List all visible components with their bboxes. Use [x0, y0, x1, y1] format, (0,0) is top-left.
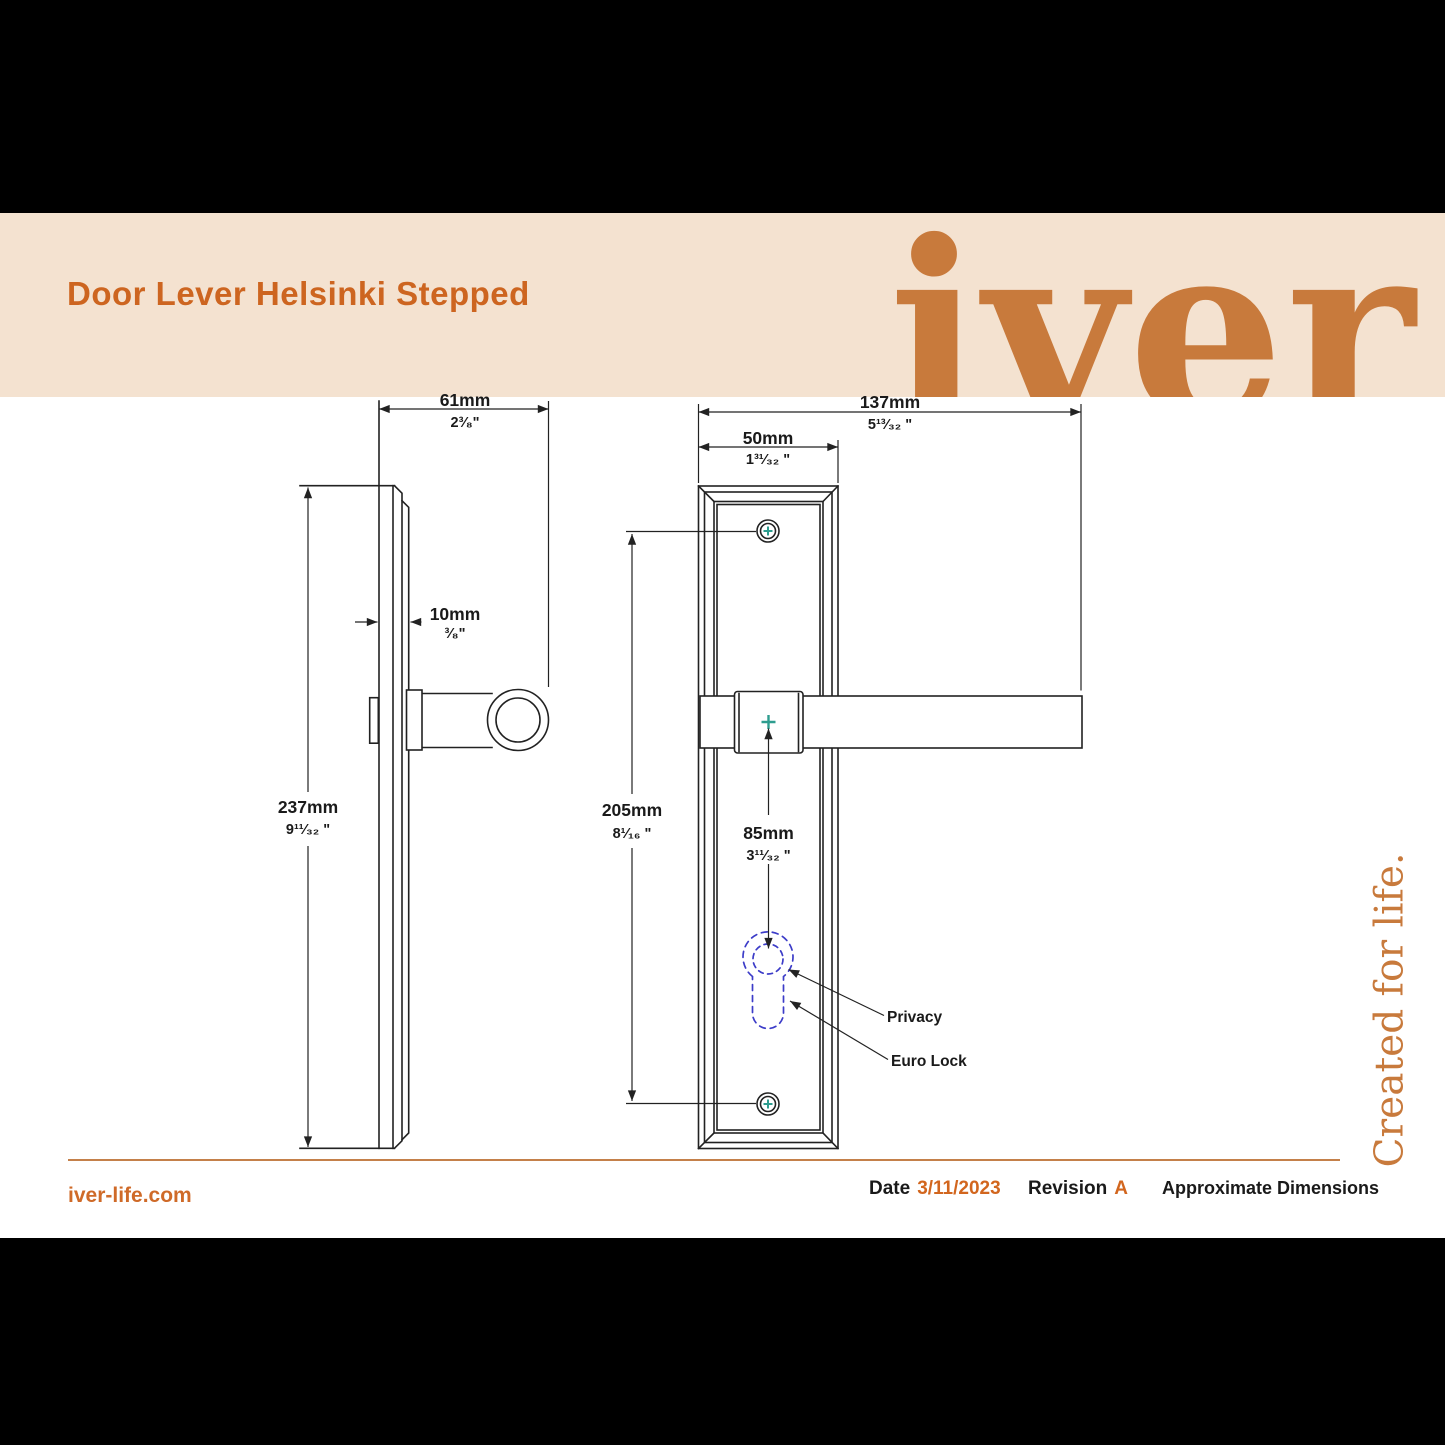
revision-field: RevisionA — [1028, 1178, 1128, 1200]
dim-61-in: 2³⁄₈" — [451, 415, 480, 431]
dimensions-note: Approximate Dimensions — [1162, 1178, 1379, 1199]
top-screw-cross — [764, 527, 773, 536]
side-lever-neck — [407, 690, 423, 750]
date-field: Date3/11/2023 — [869, 1178, 1001, 1200]
front-elevation — [699, 486, 1083, 1149]
dim-10-mm: 10mm — [430, 604, 481, 624]
dim-205-in: 8¹⁄₁₆ " — [613, 826, 652, 842]
brand-tagline: Created for life. — [1368, 853, 1413, 1168]
letterbox-bottom — [0, 1238, 1445, 1445]
front-plate-corner-miters — [699, 486, 839, 1149]
revision-label: Revision — [1028, 1178, 1107, 1199]
privacy-label: Privacy — [887, 1009, 943, 1026]
side-spindle-tab — [370, 698, 379, 744]
dim-50-mm: 50mm — [743, 428, 794, 448]
dim-237-mm: 237mm — [278, 797, 338, 817]
spec-sheet-page: { "header": { "title": "Door Lever Helsi… — [0, 0, 1445, 1445]
side-elevation — [300, 401, 549, 1148]
dim-205-mm: 205mm — [602, 800, 662, 820]
dim-237-in: 9¹¹⁄₃₂ " — [286, 822, 330, 838]
footer-rule — [68, 1159, 1340, 1161]
dim-50-in: 1³¹⁄₃₂ " — [746, 452, 790, 468]
lock-callouts: Privacy Euro Lock — [789, 970, 968, 1071]
front-plate-outer — [699, 486, 839, 1149]
date-label: Date — [869, 1178, 910, 1199]
dim-85-in: 3¹¹⁄₃₂ " — [746, 848, 790, 864]
side-elevation-dimensions: 61mm 2³⁄₈" 10mm ³⁄₈" 237mm 9¹¹⁄₃₂ " — [278, 390, 549, 1147]
front-plate-panel-outer — [714, 502, 823, 1134]
dim-137-in: 5¹³⁄₃₂ " — [868, 417, 912, 433]
date-value: 3/11/2023 — [917, 1178, 1000, 1199]
website-text: iver-life.com — [68, 1184, 192, 1208]
side-lever-bar-lines — [422, 694, 492, 748]
technical-drawing: 61mm 2³⁄₈" 10mm ³⁄₈" 237mm 9¹¹⁄₃₂ " — [0, 0, 1445, 1445]
side-plate-step-1 — [395, 486, 403, 1149]
dim-85-mm: 85mm — [743, 823, 794, 843]
side-plate-step-2 — [402, 501, 409, 1140]
dim-61-mm: 61mm — [440, 390, 491, 410]
euro-lock-label: Euro Lock — [891, 1053, 967, 1070]
front-plate-step — [705, 492, 833, 1143]
bottom-screw-cross — [764, 1100, 773, 1109]
front-plate-panel-inner — [717, 505, 820, 1131]
dim-137-mm: 137mm — [860, 392, 920, 412]
revision-value: A — [1114, 1178, 1128, 1199]
dim-10-in: ³⁄₈" — [445, 626, 466, 642]
